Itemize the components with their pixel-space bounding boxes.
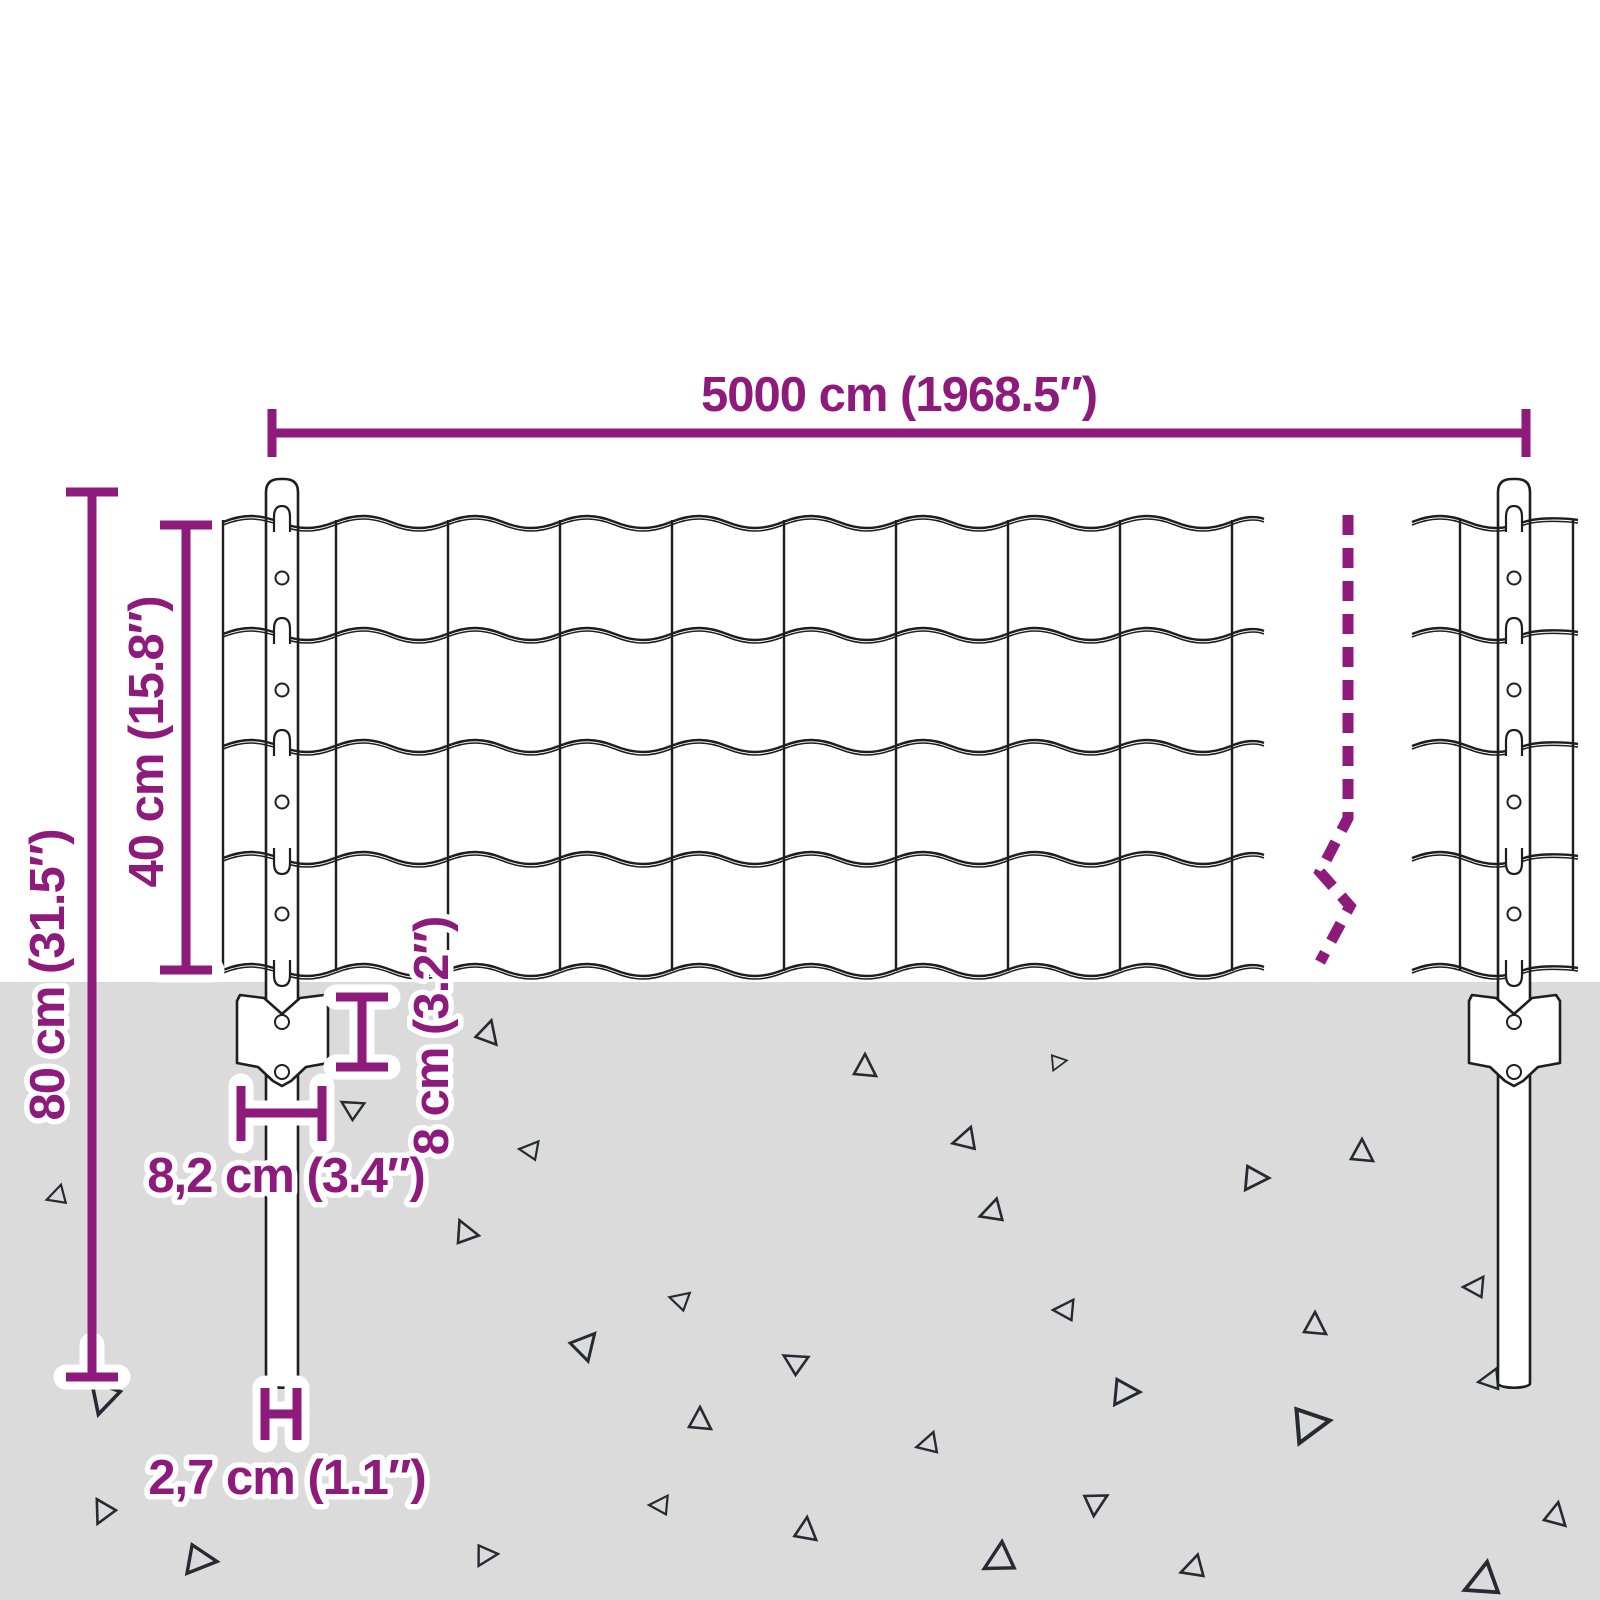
mesh-wire-horizontal	[223, 740, 1264, 752]
post-hole	[276, 684, 289, 697]
mesh-wire-horizontal-shadow	[1412, 631, 1578, 643]
mesh-wire-horizontal-shadow	[1412, 743, 1578, 755]
post-hole	[1508, 572, 1521, 585]
post-hole	[1508, 796, 1521, 809]
wire-clip	[1506, 618, 1522, 644]
wire-clip	[274, 848, 290, 874]
wire-clip	[274, 730, 290, 756]
post-hole	[276, 796, 289, 809]
label-post-diameter: 2,7 cm (1.1″)	[148, 1451, 425, 1505]
mesh-wire-horizontal-shadow	[1412, 967, 1578, 979]
bracket-hole	[275, 1065, 289, 1079]
bracket-hole	[275, 1015, 289, 1029]
bracket-hole	[1507, 1065, 1521, 1079]
wire-clip	[274, 960, 290, 986]
label-total-width: 5000 cm (1968.5″)	[701, 368, 1097, 422]
break-dashed-line	[1320, 515, 1350, 962]
fence-post	[266, 479, 298, 1388]
fence-dimension-diagram: 5000 cm (1968.5″) 80 cm (31.5″) 40 cm (1…	[0, 0, 1600, 1600]
mesh-wire-horizontal	[223, 516, 1264, 528]
post-hole	[276, 572, 289, 585]
label-bracket-width: 8,2 cm (3.4″)	[147, 1149, 424, 1203]
wire-clip	[274, 506, 290, 532]
wire-clip	[1506, 506, 1522, 532]
wire-clip	[1506, 848, 1522, 874]
break-mark	[1320, 515, 1350, 962]
wire-clip	[274, 618, 290, 644]
label-post-height: 80 cm (31.5″)	[21, 829, 75, 1120]
mesh-wire-horizontal-shadow	[1412, 519, 1578, 531]
mesh-wire-horizontal	[223, 628, 1264, 640]
fence-post	[1498, 479, 1530, 1388]
wire-clip	[1506, 730, 1522, 756]
bracket-hole	[1507, 1015, 1521, 1029]
mesh-wire-horizontal	[223, 964, 1264, 976]
wire-clip	[1506, 960, 1522, 986]
label-mesh-height: 40 cm (15.8″)	[120, 596, 174, 887]
post-hole	[276, 908, 289, 921]
post-hole	[1508, 684, 1521, 697]
post-hole	[1508, 908, 1521, 921]
mesh-wire-horizontal-shadow	[1412, 855, 1578, 867]
label-bracket-height: 8 cm (3.2″)	[405, 917, 459, 1156]
mesh-wire-horizontal	[223, 852, 1264, 864]
